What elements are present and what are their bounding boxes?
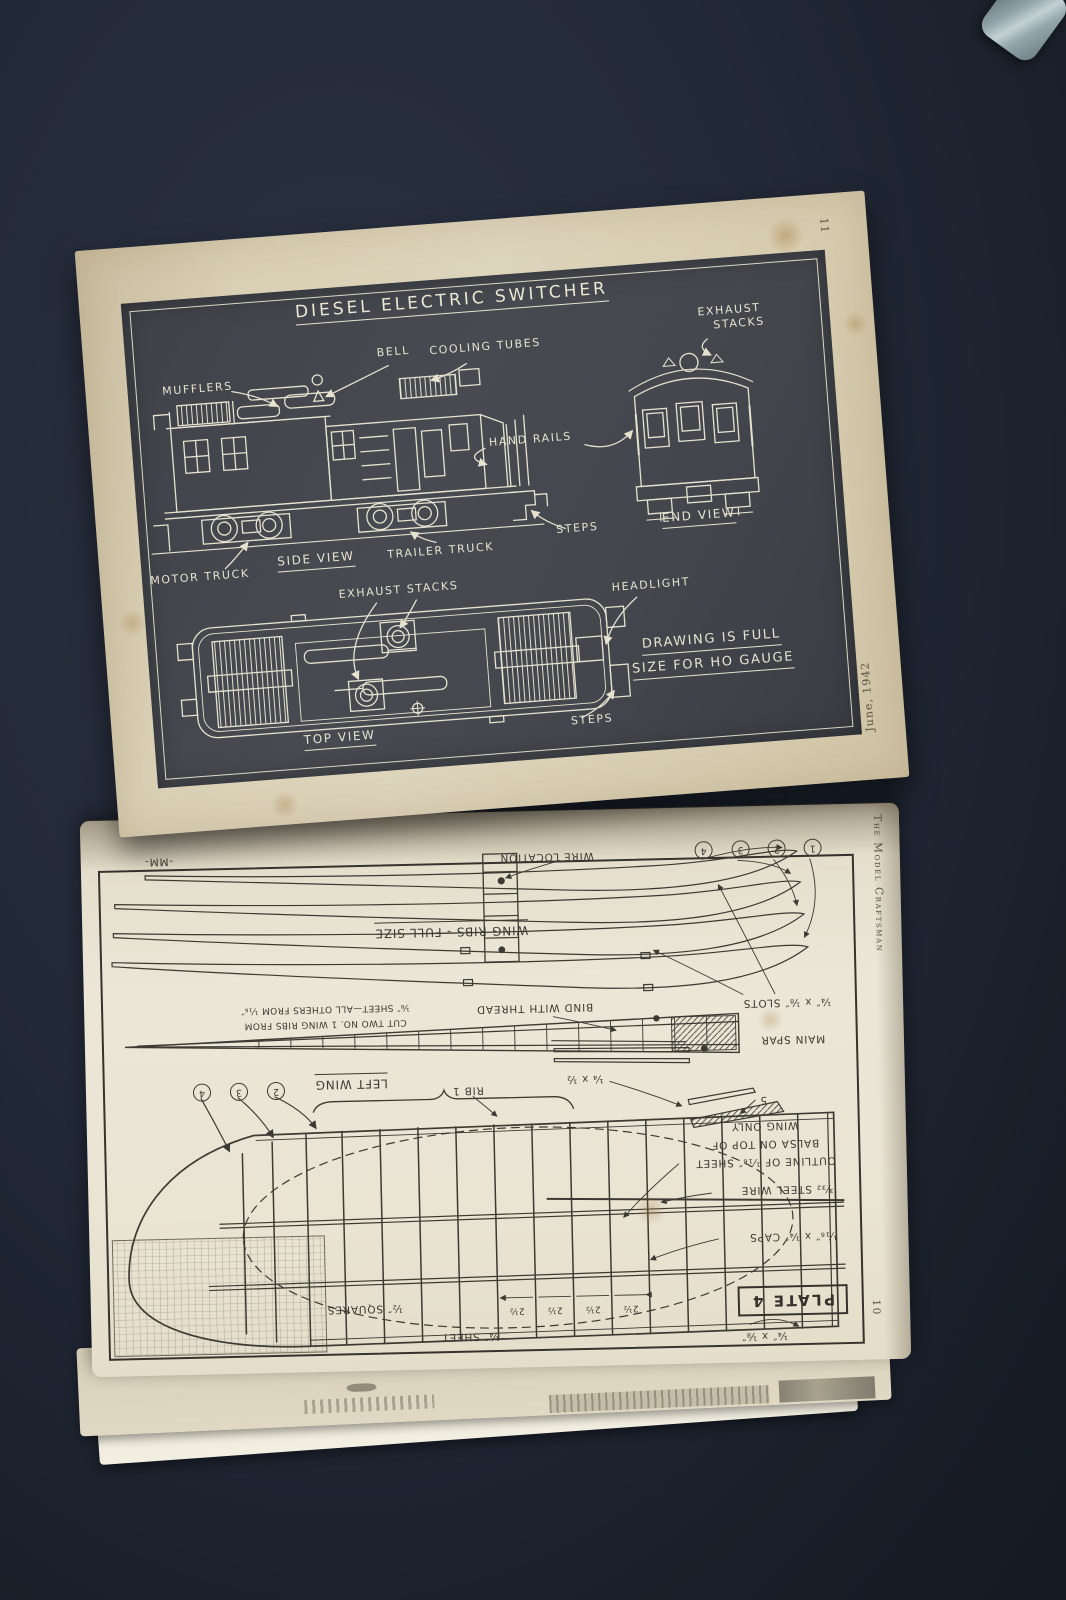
tiny-print-fragment bbox=[304, 1394, 435, 1414]
rib-spacing-dim: 2½ bbox=[580, 1302, 606, 1314]
half-squares-label: ½″ SQUARES bbox=[310, 1300, 420, 1316]
foxing-spot bbox=[118, 607, 146, 639]
rib-one-label: RIB 1 bbox=[437, 1082, 499, 1097]
top-page-diesel-plate: DIESEL ELECTRIC SWITCHER MUFFLERS BELL C… bbox=[75, 190, 910, 837]
length-dim-five: 5 bbox=[753, 1092, 773, 1106]
issue-date: June, 1942 bbox=[858, 661, 876, 732]
rib-spacing-dim: 2½ bbox=[542, 1303, 568, 1315]
photo-scene: PLATE 4 ¼″ x ⅛″ ¼″ SHEET ½″ SQUARES 2½ 2… bbox=[0, 0, 1066, 1600]
foxing-spot bbox=[764, 217, 806, 254]
fabric-roll-object bbox=[976, 0, 1066, 66]
rib-spacing-dim: 2½ bbox=[618, 1301, 644, 1313]
leading-edge-stock-label: ¼″ x ⅛″ bbox=[718, 1327, 810, 1343]
page-number-10: 10 bbox=[870, 1299, 882, 1316]
bottom-page-plate4: PLATE 4 ¼″ x ⅛″ ¼″ SHEET ½″ SQUARES 2½ 2… bbox=[80, 803, 911, 1377]
page-number-11: 11 bbox=[817, 217, 831, 234]
quarter-sheet-label: ¼″ SHEET bbox=[415, 1328, 525, 1344]
foxing-spot bbox=[267, 791, 303, 818]
halftone-photo-fragment bbox=[779, 1376, 876, 1402]
main-spar-label: MAIN SPAR bbox=[732, 1030, 854, 1046]
rib-spacing-dim: 2½ bbox=[504, 1304, 530, 1316]
logo-fragment bbox=[346, 1383, 376, 1392]
left-wing-label: LEFT WING bbox=[294, 1072, 409, 1092]
plate-number-box: PLATE 4 bbox=[738, 1284, 849, 1316]
diesel-switcher-plate: DIESEL ELECTRIC SWITCHER MUFFLERS BELL C… bbox=[121, 250, 862, 789]
aileron-stock-label: ¼ x ½ bbox=[545, 1070, 625, 1085]
foxing-spot bbox=[842, 311, 870, 337]
